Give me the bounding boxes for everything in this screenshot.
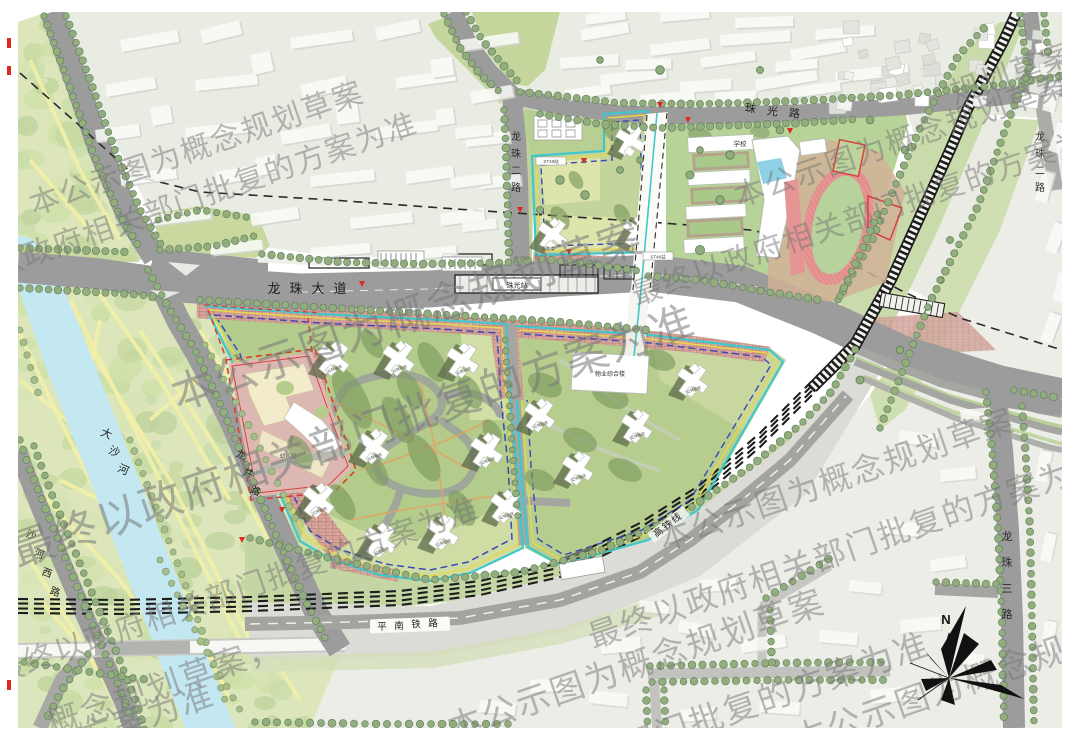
svg-text:珠: 珠 — [511, 147, 521, 160]
svg-text:光: 光 — [766, 103, 779, 118]
svg-text:龙: 龙 — [267, 281, 280, 296]
svg-text:ST46站: ST46站 — [543, 158, 559, 165]
svg-text:三: 三 — [1002, 583, 1013, 595]
svg-text:道: 道 — [333, 281, 346, 296]
svg-text:二: 二 — [511, 166, 521, 177]
svg-text:路: 路 — [511, 181, 521, 194]
svg-text:珠: 珠 — [1002, 555, 1013, 569]
svg-text:ST46站: ST46站 — [650, 254, 666, 261]
svg-text:N: N — [941, 612, 950, 627]
svg-text:珠: 珠 — [744, 100, 757, 115]
svg-text:平: 平 — [377, 622, 387, 633]
svg-text:学校: 学校 — [734, 139, 748, 148]
svg-text:路: 路 — [428, 617, 438, 629]
svg-text:路: 路 — [1035, 181, 1045, 194]
svg-text:铁: 铁 — [411, 619, 421, 631]
svg-text:龙: 龙 — [1002, 530, 1013, 543]
svg-text:龙: 龙 — [511, 130, 521, 143]
svg-text:大: 大 — [311, 281, 324, 296]
svg-text:路: 路 — [788, 106, 801, 120]
svg-text:路: 路 — [1002, 608, 1013, 621]
svg-text:南: 南 — [394, 620, 404, 632]
svg-text:珠: 珠 — [289, 281, 302, 296]
